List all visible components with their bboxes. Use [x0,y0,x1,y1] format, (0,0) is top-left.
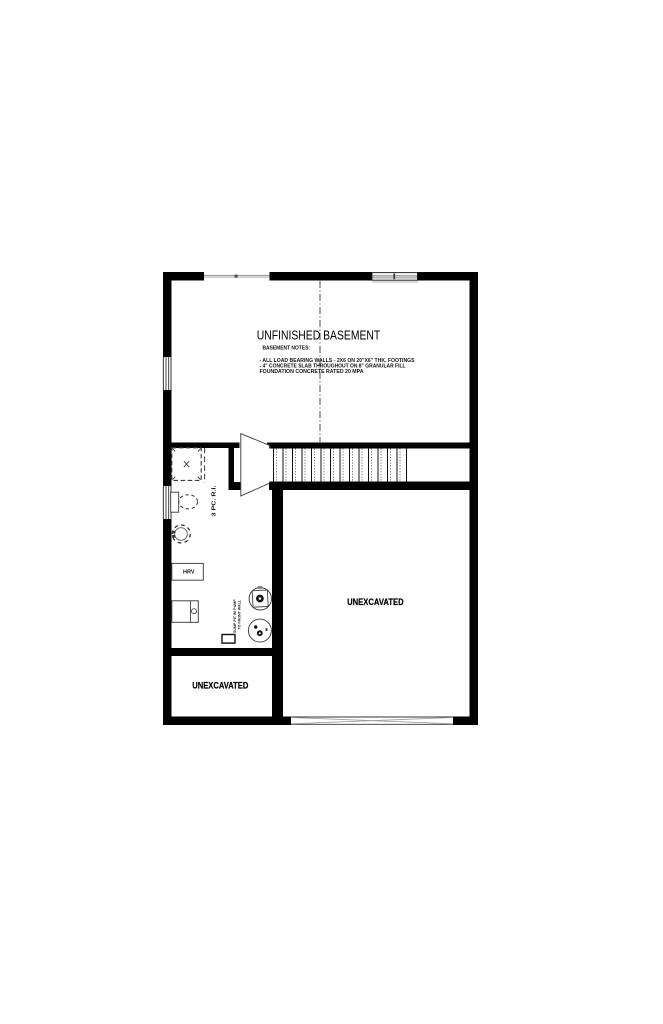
svg-text:HRV: HRV [183,569,195,575]
svg-text:BASEMENT NOTES:: BASEMENT NOTES: [263,346,311,352]
svg-text:UNEXCAVATED: UNEXCAVATED [192,680,248,690]
svg-text:SUMP PIT W/ PUMP: SUMP PIT W/ PUMP [233,599,237,633]
svg-text:3 PC. R.I.: 3 PC. R.I. [211,485,217,517]
svg-text:FOUNDATION CONCRETE RATED 20 M: FOUNDATION CONCRETE RATED 20 MPA [260,369,364,375]
svg-text:TO FRONT WALL: TO FRONT WALL [238,599,242,629]
svg-text:UNEXCAVATED: UNEXCAVATED [347,596,404,607]
svg-text:UNFINISHED BASEMENT: UNFINISHED BASEMENT [257,328,381,343]
